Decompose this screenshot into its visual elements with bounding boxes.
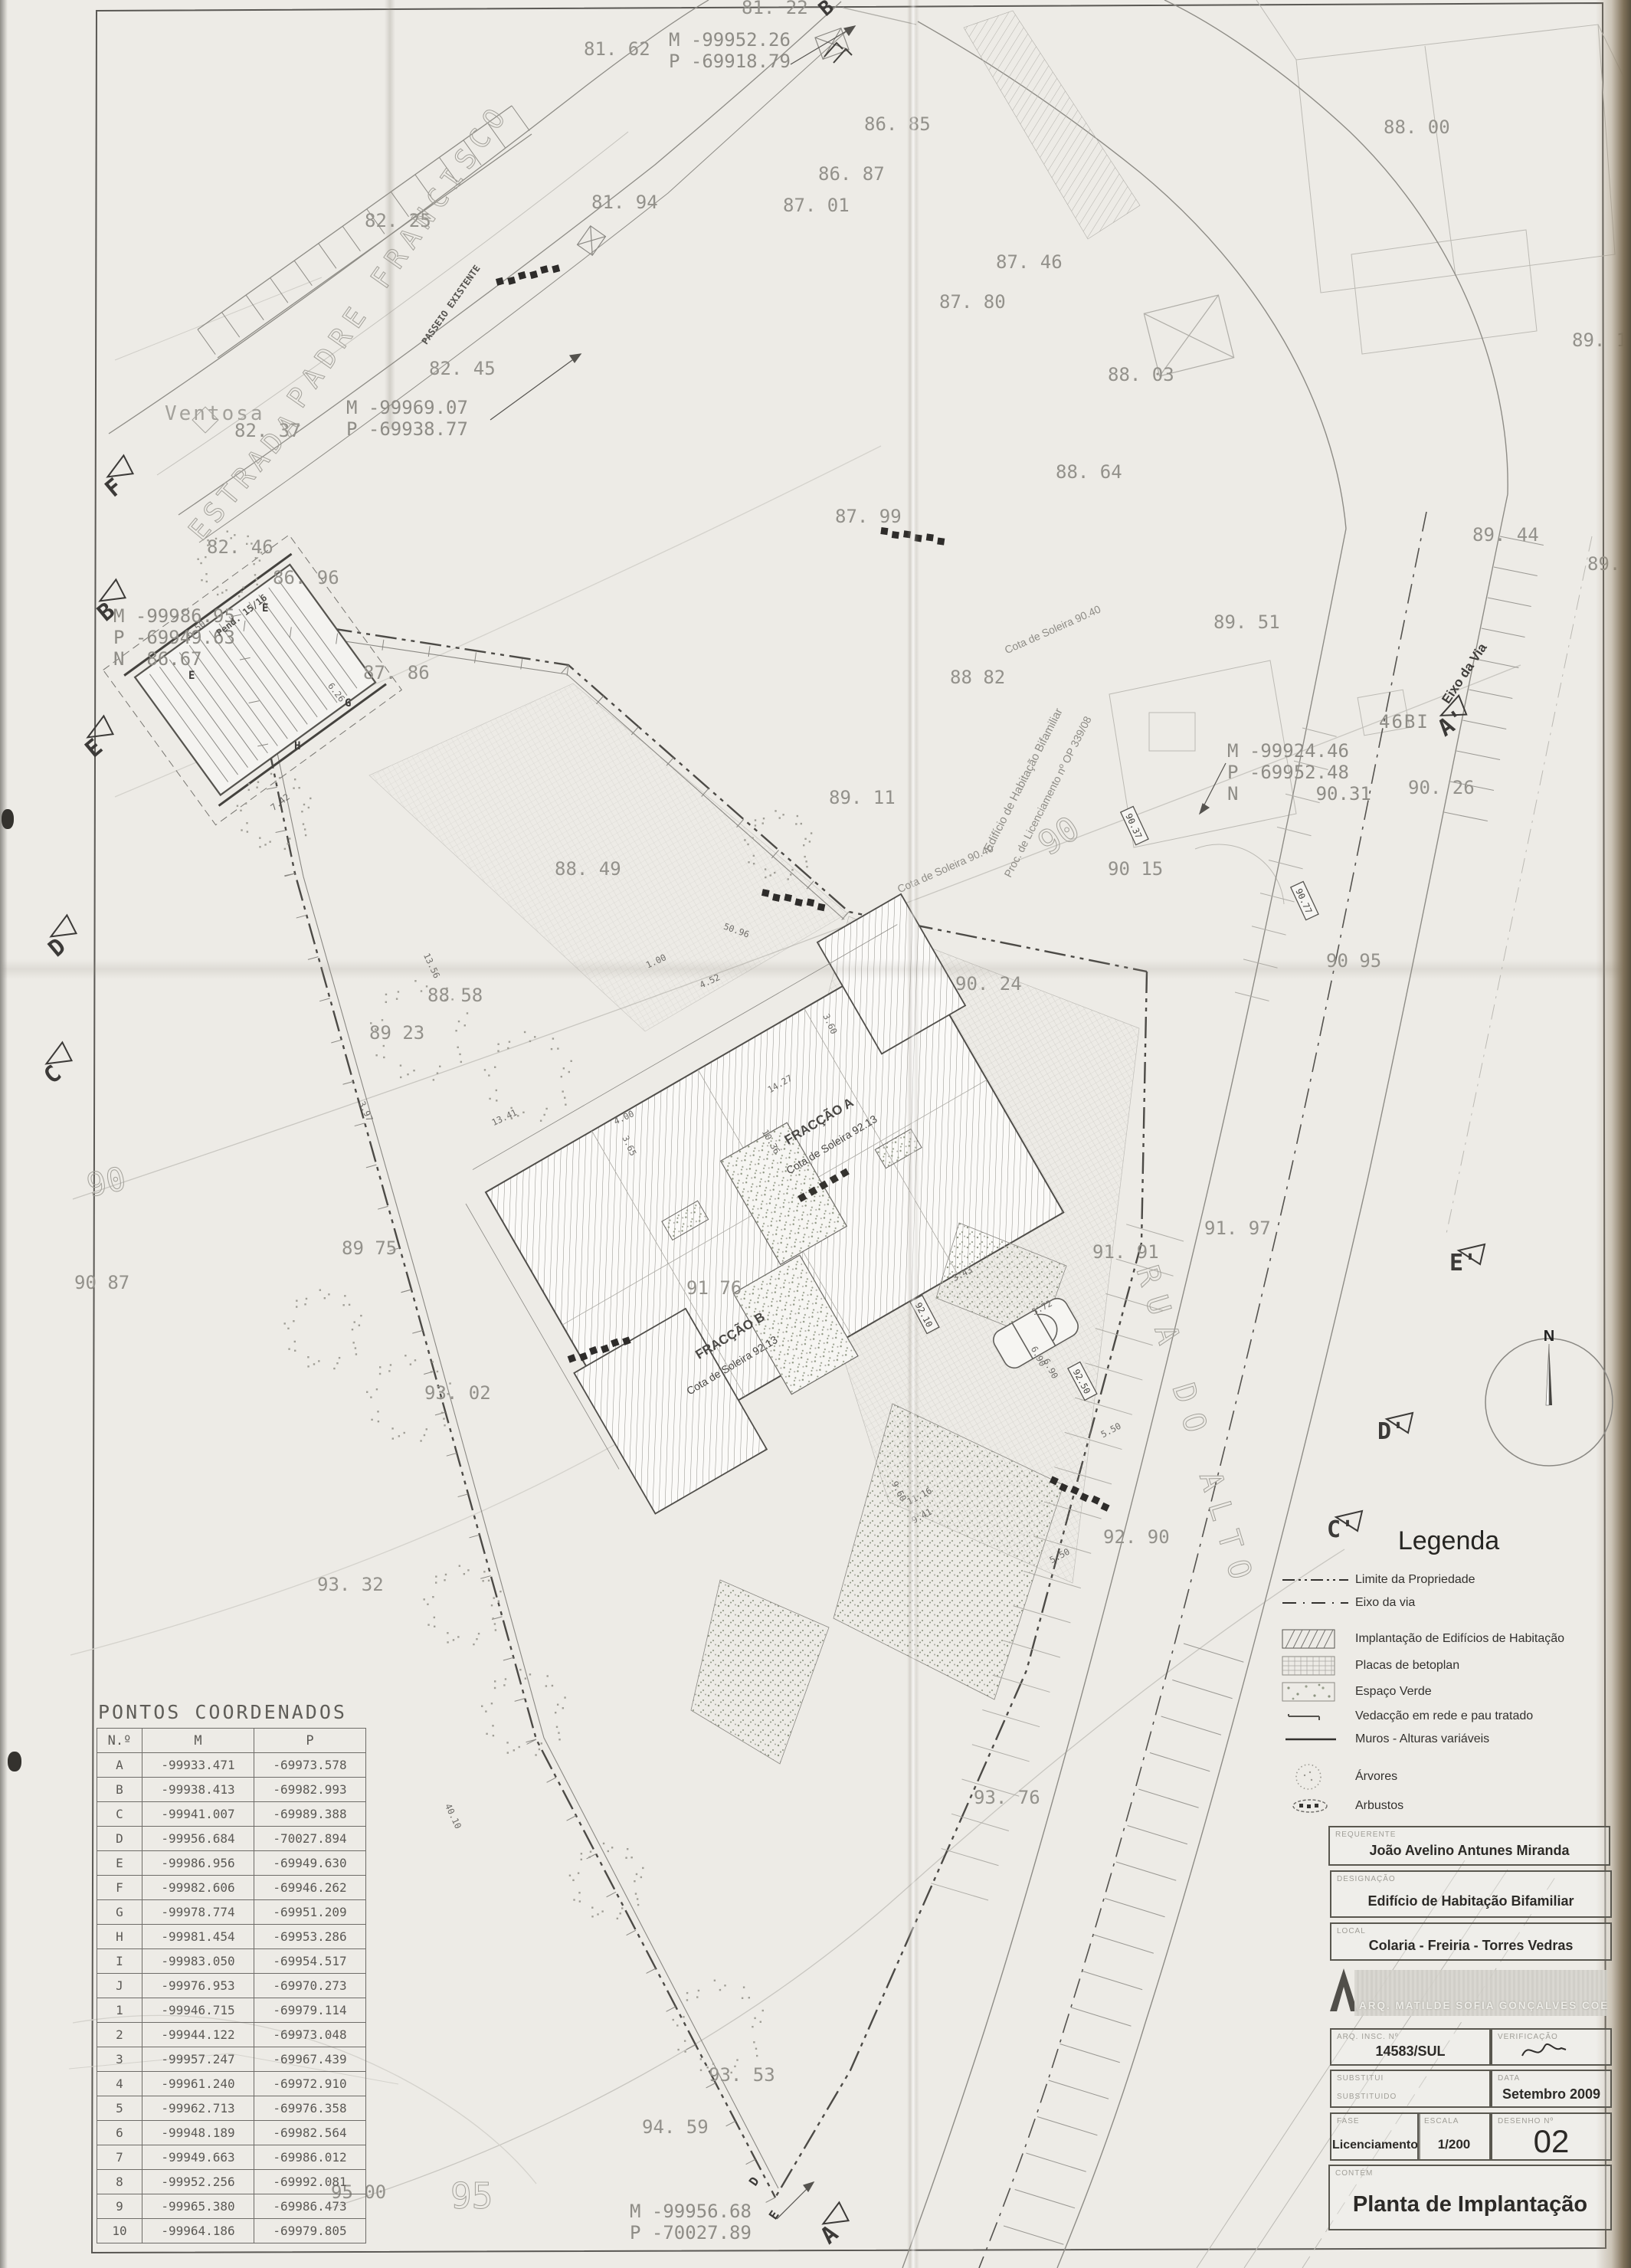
spot-elevation: 89 23 <box>369 1022 424 1044</box>
table-cell: 2 <box>97 2023 142 2047</box>
table-cell: 7 <box>97 2145 142 2170</box>
section-marker: D <box>40 915 87 962</box>
spot-elevation: 89. 51 <box>1213 611 1280 633</box>
tree-symbol <box>673 1980 764 2074</box>
coordinates-panel: PONTOS COORDENADOS N.º M P A-99933.471-6… <box>97 1701 366 2243</box>
spot-elevation: 87. 86 <box>363 662 430 683</box>
table-cell: E <box>97 1851 142 1876</box>
coordinates-table-title: PONTOS COORDENADOS <box>98 1701 366 1723</box>
table-cell: -99962.713 <box>142 2096 254 2121</box>
legend-item-label: Vedacção em rede e pau tratado <box>1355 1709 1533 1723</box>
road-estrada <box>109 0 916 542</box>
road-axis-line-icon <box>1276 1598 1355 1608</box>
spot-elevation: 87. 80 <box>939 291 1006 313</box>
spot-elevation: 82. 45 <box>429 358 496 379</box>
table-cell: 4 <box>97 2072 142 2096</box>
column-header-p: P <box>254 1729 366 1753</box>
spot-elevation: 88. 49 <box>555 858 621 880</box>
table-cell: -69967.439 <box>254 2047 366 2072</box>
spot-elevation: 89. 44 <box>1472 524 1539 546</box>
table-cell: -69970.273 <box>254 1974 366 1998</box>
boxed-elevation: 90.77 <box>1291 881 1318 919</box>
arq-insc-value: 14583/SUL <box>1331 2043 1489 2060</box>
page-edge-left <box>0 0 8 2268</box>
table-cell: -69972.910 <box>254 2072 366 2096</box>
table-cell: -99964.186 <box>142 2219 254 2243</box>
shrub-symbol-icon <box>1276 1796 1355 1816</box>
local-value: Colaria - Freiria - Torres Vedras <box>1331 1938 1610 1954</box>
spot-elevation: 88 58 <box>427 985 483 1006</box>
legend-item-label: Eixo da via <box>1355 1596 1415 1610</box>
column-header-m: M <box>142 1729 254 1753</box>
table-row: G-99978.774-69951.209 <box>97 1900 366 1925</box>
table-cell: -69992.081 <box>254 2170 366 2194</box>
designacao-box: DESIGNAÇÃO Edifício de Habitação Bifamil… <box>1330 1870 1612 1918</box>
table-row: D-99956.684-70027.894 <box>97 1827 366 1851</box>
contem-value: Planta de Implantação <box>1330 2192 1610 2217</box>
legend-title: Legenda <box>1276 1526 1622 1556</box>
desenho-box: DESENHO Nº 02 <box>1491 2112 1612 2161</box>
table-cell: -69986.012 <box>254 2145 366 2170</box>
substitui-label: SUBSTITUI <box>1337 2074 1384 2083</box>
table-cell: -99978.774 <box>142 1900 254 1925</box>
table-cell: 1 <box>97 1998 142 2023</box>
legend-item: Muros - Alturas variáveis <box>1276 1728 1622 1751</box>
section-marker: A' <box>1430 696 1477 742</box>
tree-symbol <box>423 1565 501 1646</box>
paper-crease-horizontal <box>0 959 1631 979</box>
dimension-label: 3.97 <box>356 1100 375 1123</box>
spot-elevation: 91. 91 <box>1092 1241 1159 1263</box>
table-cell: -69973.048 <box>254 2023 366 2047</box>
table-cell: -69973.578 <box>254 1753 366 1778</box>
table-cell: -69951.209 <box>254 1900 366 1925</box>
section-marker: E <box>77 716 124 763</box>
table-cell: -99981.454 <box>142 1925 254 1949</box>
contem-box: CONTÉM Planta de Implantação <box>1328 2165 1612 2230</box>
spot-elevation: 87. 46 <box>996 251 1063 273</box>
fence-symbol-icon <box>1276 1710 1355 1722</box>
table-cell: -99965.380 <box>142 2194 254 2219</box>
spot-elevation: 91. 97 <box>1204 1218 1271 1239</box>
table-cell: -99957.247 <box>142 2047 254 2072</box>
section-marker-letter: E <box>766 2207 782 2222</box>
spot-elevation: 86. 85 <box>864 113 931 135</box>
section-marker: B <box>809 0 856 21</box>
coordinate-callout: P -70027.89 <box>630 2222 752 2243</box>
entry-stairs-detail <box>103 535 402 825</box>
section-marker: E <box>188 670 195 682</box>
table-cell: B <box>97 1778 142 1802</box>
tree-symbol-icon <box>1276 1762 1355 1792</box>
table-row: A-99933.471-69973.578 <box>97 1753 366 1778</box>
spot-elevation: 93. 32 <box>317 1574 384 1595</box>
coordinate-callout: N 86.67 <box>113 648 202 670</box>
table-cell: 3 <box>97 2047 142 2072</box>
table-row: E-99986.956-69949.630 <box>97 1851 366 1876</box>
table-row: 9-99965.380-69986.473 <box>97 2194 366 2219</box>
legend-item: Limite da Propriedade <box>1276 1568 1622 1591</box>
legend-item: Placas de betoplan <box>1276 1653 1622 1679</box>
table-row: 5-99962.713-69976.358 <box>97 2096 366 2121</box>
green-space-swatch-icon <box>1276 1680 1355 1703</box>
legend-item-label: Espaço Verde <box>1355 1685 1432 1699</box>
table-row: 1-99946.715-69979.114 <box>97 1998 366 2023</box>
paper-crease-vertical-2 <box>385 0 395 429</box>
binder-hole-mark <box>8 1752 21 1771</box>
local-label: LOCAL <box>1337 1927 1366 1935</box>
legend-item-label: Placas de betoplan <box>1355 1659 1459 1673</box>
spot-elevation: 90. 26 <box>1408 777 1475 798</box>
spot-elevation: 82. 46 <box>207 536 273 558</box>
dimension-label: 5.50 <box>1099 1421 1123 1440</box>
plan-note: Cota de Soleira 90.40 <box>1003 602 1102 656</box>
spot-elevation: 93. 53 <box>709 2064 775 2086</box>
table-cell: -99986.956 <box>142 1851 254 1876</box>
section-marker: C <box>35 1042 83 1090</box>
table-cell: -99933.471 <box>142 1753 254 1778</box>
table-cell: -99952.256 <box>142 2170 254 2194</box>
table-header-row: N.º M P <box>97 1729 366 1753</box>
table-row: 7-99949.663-69986.012 <box>97 2145 366 2170</box>
table-cell: C <box>97 1802 142 1827</box>
contem-label: CONTÉM <box>1335 2169 1373 2178</box>
coordinate-callout: M -99969.07 <box>346 397 468 418</box>
substitui-box: SUBSTITUI SUBSTITUIDO <box>1330 2070 1491 2108</box>
legend-item: Implantação de Edifícios de Habitação <box>1276 1625 1622 1653</box>
table-cell: -99949.663 <box>142 2145 254 2170</box>
legend-item: Árvores <box>1276 1762 1622 1792</box>
spot-elevation: 81. 22 <box>742 0 808 18</box>
fase-label: FASE <box>1337 2117 1360 2125</box>
table-cell: H <box>97 1925 142 1949</box>
legend-panel: Legenda Limite da Propriedade Eixo da vi… <box>1276 1526 1622 1820</box>
section-marker: A <box>812 2202 860 2250</box>
paper-crease-vertical <box>907 0 919 2268</box>
coordinates-table: N.º M P A-99933.471-69973.578B-99938.413… <box>97 1728 366 2243</box>
coordinate-callout: P -69952.48 <box>1227 762 1349 783</box>
arq-insc-box: ARQ. INSC. Nº 14583/SUL <box>1330 2028 1491 2066</box>
table-cell: A <box>97 1753 142 1778</box>
table-cell: 6 <box>97 2121 142 2145</box>
legend-item: Eixo da via <box>1276 1591 1622 1614</box>
architect-stamp: ARQ. MATILDE SOFIA GONÇALVES COELHO <box>1328 1964 1609 2022</box>
table-cell: -69953.286 <box>254 1925 366 1949</box>
plan-note: 90 <box>84 1159 129 1204</box>
table-cell: 10 <box>97 2219 142 2243</box>
table-row: C-99941.007-69989.388 <box>97 1802 366 1827</box>
section-marker-letter: H <box>294 740 300 752</box>
table-cell: F <box>97 1876 142 1900</box>
section-marker: E <box>262 602 268 615</box>
legend-item: Espaço Verde <box>1276 1679 1622 1705</box>
coordinate-callout: M -99986.95 <box>113 605 235 627</box>
requerente-value: João Avelino Antunes Miranda <box>1330 1843 1609 1859</box>
legend-item: Vedacção em rede e pau tratado <box>1276 1705 1622 1728</box>
table-cell: J <box>97 1974 142 1998</box>
section-marker: E' <box>1449 1244 1485 1277</box>
spot-elevation: 86. 96 <box>273 567 339 588</box>
table-cell: -69986.473 <box>254 2194 366 2219</box>
table-row: 3-99957.247-69967.439 <box>97 2047 366 2072</box>
section-marker-letter: G <box>345 697 351 710</box>
tree-symbol <box>283 1290 362 1370</box>
table-cell: -99956.684 <box>142 1827 254 1851</box>
section-marker-letter: A <box>816 2220 843 2250</box>
table-cell: -99976.953 <box>142 1974 254 1998</box>
table-cell: -69954.517 <box>254 1949 366 1974</box>
table-row: I-99983.050-69954.517 <box>97 1949 366 1974</box>
wall-line-icon <box>1276 1734 1355 1745</box>
legend-item-label: Arbustos <box>1355 1799 1403 1813</box>
table-cell: -69989.388 <box>254 1802 366 1827</box>
table-cell: 5 <box>97 2096 142 2121</box>
arq-insc-label: ARQ. INSC. Nº <box>1337 2033 1399 2041</box>
plan-note: 46BI <box>1379 711 1430 733</box>
table-cell: -69982.564 <box>254 2121 366 2145</box>
table-cell: -99938.413 <box>142 1778 254 1802</box>
section-marker: H <box>294 740 300 752</box>
spot-elevation: 92. 90 <box>1103 1526 1170 1548</box>
section-marker-letter: E <box>188 670 195 682</box>
table-row: F-99982.606-69946.262 <box>97 1876 366 1900</box>
coordinate-callout: P -69938.77 <box>346 418 468 440</box>
table-cell: 8 <box>97 2170 142 2194</box>
requerente-box: REQUERENTE João Avelino Antunes Miranda <box>1328 1826 1610 1866</box>
legend-item-label: Implantação de Edifícios de Habitação <box>1355 1632 1564 1646</box>
fase-box: FASE Licenciamento <box>1330 2112 1420 2161</box>
table-cell: G <box>97 1900 142 1925</box>
spot-elevation: 91 76 <box>686 1277 742 1299</box>
spot-elevation: 81. 94 <box>591 192 658 213</box>
spot-elevation: 89. 11 <box>829 787 896 808</box>
table-cell: -69946.262 <box>254 1876 366 1900</box>
section-marker-letter: B <box>814 0 838 21</box>
legend-item-label: Árvores <box>1355 1770 1397 1784</box>
table-row: 6-99948.189-69982.564 <box>97 2121 366 2145</box>
spot-elevation: 94. 59 <box>642 2116 709 2138</box>
table-cell: -69949.630 <box>254 1851 366 1876</box>
spot-elevation: 89 75 <box>342 1237 397 1259</box>
table-cell: -99982.606 <box>142 1876 254 1900</box>
section-marker: G <box>345 697 351 710</box>
data-value: Setembro 2009 <box>1492 2086 1610 2102</box>
table-row: H-99981.454-69953.286 <box>97 1925 366 1949</box>
coordinate-callout: N 90.31 <box>1227 783 1371 805</box>
spot-elevation: 93. 76 <box>974 1787 1040 1808</box>
table-cell: -99961.240 <box>142 2072 254 2096</box>
column-header-numero: N.º <box>97 1729 142 1753</box>
plan-note: 95 <box>450 2175 493 2217</box>
table-cell: -99946.715 <box>142 1998 254 2023</box>
coordinate-callout: M -99956.68 <box>630 2201 752 2222</box>
shrub-symbol <box>496 262 560 287</box>
building-hatch-swatch-icon <box>1276 1627 1355 1650</box>
legend-item: Arbustos <box>1276 1792 1622 1820</box>
local-box: LOCAL Colaria - Freiria - Torres Vedras <box>1330 1922 1612 1961</box>
section-marker-letter: F <box>100 474 128 503</box>
verificacao-box: VERIFICAÇÃO <box>1491 2028 1612 2066</box>
binder-hole-mark <box>2 809 14 829</box>
designacao-label: DESIGNAÇÃO <box>1337 1875 1396 1883</box>
table-row: B-99938.413-69982.993 <box>97 1778 366 1802</box>
designacao-value: Edifício de Habitação Bifamiliar <box>1331 1893 1610 1909</box>
requerente-label: REQUERENTE <box>1335 1830 1396 1839</box>
section-marker: D <box>746 2174 762 2188</box>
property-limit-line-icon <box>1276 1575 1355 1585</box>
section-marker: D' <box>1377 1413 1413 1445</box>
substituido-label: SUBSTITUIDO <box>1337 2093 1397 2101</box>
data-box: DATA Setembro 2009 <box>1491 2070 1612 2108</box>
legend-item-label: Limite da Propriedade <box>1355 1573 1475 1587</box>
tree-symbol <box>481 1669 566 1756</box>
table-row: 4-99961.240-69972.910 <box>97 2072 366 2096</box>
spot-elevation: 88. 03 <box>1108 364 1174 385</box>
stamp-band: ARQ. MATILDE SOFIA GONÇALVES COELHO <box>1354 1970 1607 2016</box>
table-cell: -99941.007 <box>142 1802 254 1827</box>
section-marker: E <box>766 2207 782 2222</box>
coordinates-table-body: A-99933.471-69973.578B-99938.413-69982.9… <box>97 1753 366 2243</box>
escala-value: 1/200 <box>1419 2137 1489 2152</box>
plan-note: Eixo da Via <box>1439 641 1490 706</box>
spot-elevation: 81. 62 <box>584 38 650 60</box>
legend-item-label: Muros - Alturas variáveis <box>1355 1732 1489 1746</box>
spot-elevation: 88. 00 <box>1384 116 1450 138</box>
spot-elevation: 90 15 <box>1108 858 1163 880</box>
table-cell: -69979.805 <box>254 2219 366 2243</box>
table-cell: -70027.894 <box>254 1827 366 1851</box>
table-row: J-99976.953-69970.273 <box>97 1974 366 1998</box>
spot-elevation: 87. 99 <box>835 506 902 527</box>
table-row: 10-99964.186-69979.805 <box>97 2219 366 2243</box>
spot-elevation: 87. 01 <box>783 195 850 216</box>
table-cell: D <box>97 1827 142 1851</box>
table-cell: -69976.358 <box>254 2096 366 2121</box>
table-cell: -99983.050 <box>142 1949 254 1974</box>
escala-box: ESCALA 1/200 <box>1417 2112 1491 2161</box>
betoplan-grid-swatch-icon <box>1276 1654 1355 1677</box>
table-cell: -99948.189 <box>142 2121 254 2145</box>
scanned-site-plan-sheet: { "sheet": {"bg":"#edebe6","ink":"#4a484… <box>0 0 1631 2268</box>
coordinate-callout: M -99952.26 <box>669 29 791 51</box>
escala-label: ESCALA <box>1424 2117 1459 2125</box>
dimension-label: 7.42 <box>268 792 291 813</box>
spot-elevation: 88. 64 <box>1056 461 1122 483</box>
spot-elevation: 86. 87 <box>818 163 885 185</box>
plan-note: PASSEIO EXISTENTE <box>420 263 483 346</box>
plan-note: Ventosa <box>165 402 265 425</box>
data-label: DATA <box>1498 2074 1520 2083</box>
section-marker: F <box>97 455 144 503</box>
dimension-label: 40.10 <box>443 1802 463 1830</box>
table-row: 2-99944.122-69973.048 <box>97 2023 366 2047</box>
table-cell: -69979.114 <box>254 1998 366 2023</box>
signature-icon <box>1518 2039 1580 2062</box>
coordinate-callout: P -69918.79 <box>669 51 791 72</box>
fase-value: Licenciamento <box>1331 2139 1419 2152</box>
north-compass: N <box>1472 1321 1626 1474</box>
table-cell: I <box>97 1949 142 1974</box>
stamp-architect-name: ARQ. MATILDE SOFIA GONÇALVES COELHO <box>1359 2000 1607 2011</box>
section-marker-letter: E <box>262 602 268 615</box>
spot-elevation: 88 82 <box>950 667 1005 688</box>
table-row: 8-99952.256-69992.081 <box>97 2170 366 2194</box>
dimension-label: 13.41 <box>490 1107 519 1128</box>
desenho-value: 02 <box>1492 2123 1610 2160</box>
section-marker-letter: E <box>80 734 108 763</box>
coordinate-callout: M -99924.46 <box>1227 740 1349 762</box>
compass-needle-icon <box>1549 1344 1552 1405</box>
table-cell: -69982.993 <box>254 1778 366 1802</box>
section-marker-letter: D <box>44 933 71 962</box>
north-label: N <box>1544 1328 1554 1345</box>
spot-elevation: 90 87 <box>74 1272 129 1293</box>
table-cell: 9 <box>97 2194 142 2219</box>
section-marker-letter: C <box>39 1060 67 1090</box>
tree-symbol <box>484 1031 572 1122</box>
table-cell: -99944.122 <box>142 2023 254 2047</box>
section-marker-letter: D <box>746 2174 762 2188</box>
spot-elevation: 93. 02 <box>424 1382 491 1404</box>
